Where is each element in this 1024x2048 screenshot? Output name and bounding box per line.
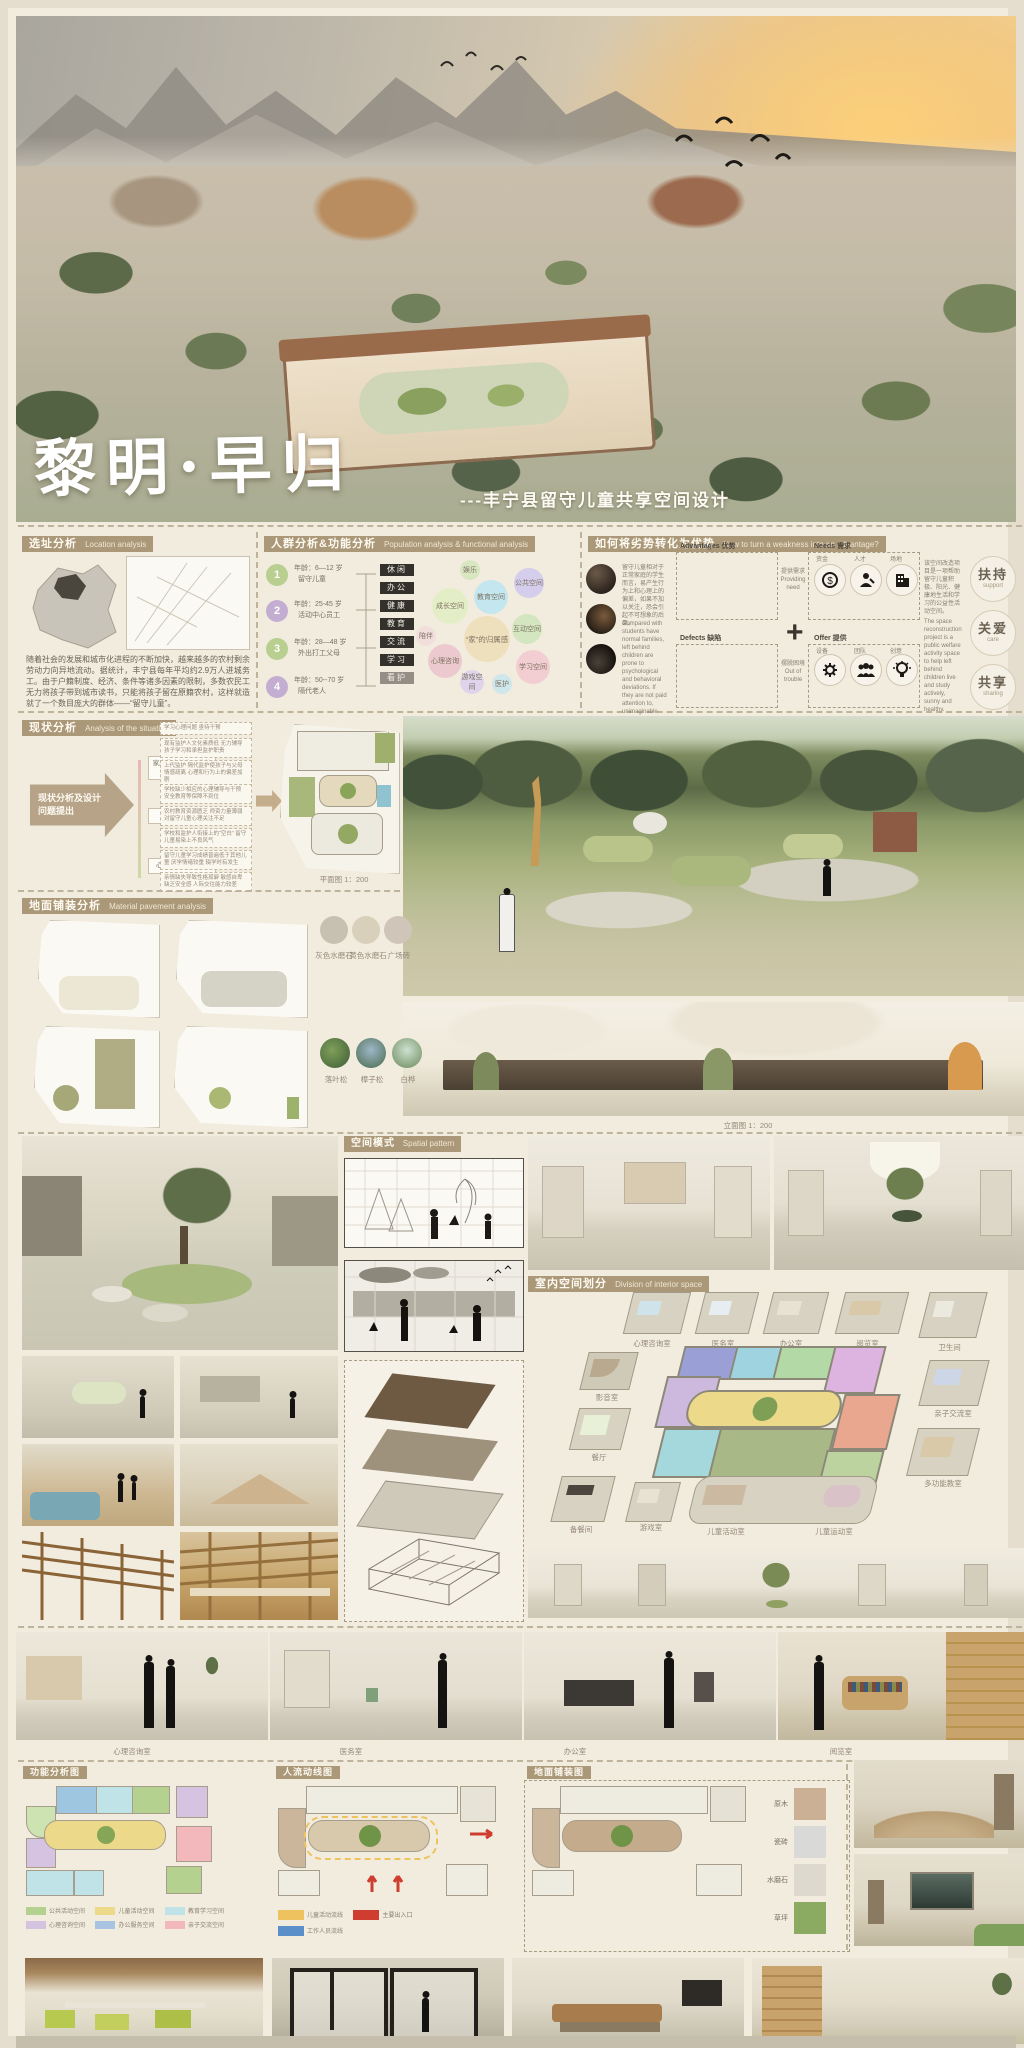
- tag-study: 学习: [380, 654, 414, 666]
- connector-lines: [356, 564, 378, 704]
- divider: [18, 525, 1022, 527]
- situation-arrow-label: 现状分析及设计问题提出: [38, 792, 102, 818]
- dining-tables: [65, 2002, 205, 2008]
- birds-icon: [436, 46, 556, 86]
- legend-family: 亲子交流空间: [165, 1923, 224, 1929]
- panorama-reading: [778, 1632, 1024, 1740]
- divider: [846, 1764, 848, 1950]
- room-axon-play-fill: [637, 1489, 660, 1503]
- interior-strip-render: [528, 1548, 1024, 1618]
- pavement-1-area: [59, 976, 139, 1010]
- room-label-toilet: 卫生间: [922, 1342, 977, 1353]
- meeting-chairs: [560, 2022, 660, 2032]
- tag-communication: 交流: [380, 636, 414, 648]
- defects-box: [676, 644, 778, 708]
- situation-arrow-box: 现状分析及设计问题提出: [30, 773, 134, 837]
- pp-room-bl: [532, 1870, 574, 1896]
- axon-roof-slab: [364, 1373, 495, 1428]
- room-label-counseling: 心理咨询室: [622, 1338, 682, 1349]
- elevation-caption: 立面图 1：200: [688, 1120, 808, 1131]
- issue-3: 上代监护 隔代监护使孩子与父母情感疏离 心理和行为上的偏差加剧: [160, 760, 252, 787]
- room-label-prep: 备餐间: [556, 1524, 606, 1535]
- keyword-care-en: care: [971, 637, 1015, 643]
- pano4-figure: [814, 1662, 824, 1730]
- plan-lawn-circle: [338, 824, 358, 844]
- advantages-box: [676, 552, 778, 620]
- room-axon-office: [763, 1292, 829, 1334]
- material-swatch-1: [320, 916, 348, 944]
- context-photo-2: [586, 604, 616, 634]
- section-spatial-title-zh: 空间模式: [351, 1138, 395, 1149]
- cp-room-bl: [278, 1870, 320, 1896]
- pano1-figure-2: [166, 1666, 175, 1728]
- arrow-top-label: 提供需求 Providing need: [780, 568, 806, 592]
- defects-box-label: Defects 缺陷: [680, 634, 721, 643]
- pp-rooms-top: [560, 1786, 708, 1814]
- group-3-age: 年龄：28—48 岁: [294, 638, 358, 647]
- county-map: [28, 560, 120, 652]
- legend-staffflow-label: 工作人员流线: [307, 1929, 343, 1935]
- room-axon-counseling: [623, 1292, 691, 1334]
- divider: [18, 890, 400, 892]
- dining-chairs-3: [155, 2010, 191, 2028]
- projection-screen: [910, 1872, 974, 1910]
- room-axon-dining: [569, 1408, 631, 1450]
- bubble-counseling: 心理咨询: [428, 644, 462, 678]
- poster-footer-strip: [16, 2036, 1016, 2048]
- person-silhouette: [823, 866, 831, 896]
- pano4-books: [848, 1682, 902, 1692]
- room-axon-toilet: [918, 1292, 987, 1338]
- doorway-1: [542, 1166, 584, 1238]
- tree-trunk: [180, 1226, 188, 1266]
- offer-item-3: 创意: [890, 648, 902, 656]
- needs-funding-icon: $: [814, 564, 846, 596]
- divider: [18, 711, 1022, 713]
- context-photo-3: [586, 644, 616, 674]
- room-axon-multi-fill: [920, 1437, 955, 1457]
- room-axon-medical: [695, 1292, 759, 1334]
- bubble-public-space: 公共空间: [514, 568, 544, 598]
- big-arrow: [256, 790, 282, 812]
- material-swatch-3: [384, 916, 412, 944]
- sculpture-white: [633, 812, 667, 834]
- fp-room-green3: [166, 1866, 202, 1894]
- fp-room-cyan3: [74, 1870, 104, 1896]
- projection-door: [868, 1880, 884, 1924]
- master-plan: [280, 724, 400, 874]
- pano3-figure-1: [664, 1658, 674, 1728]
- pavement-3-area: [95, 1039, 135, 1109]
- doorway-2: [714, 1166, 752, 1238]
- legend-childflow-swatch: [278, 1910, 304, 1920]
- legend-entrance-swatch: [353, 1910, 379, 1920]
- legend-staffflow: 工作人员流线: [278, 1929, 343, 1935]
- legend-childflow-label: 儿童活动流线: [307, 1913, 343, 1919]
- pano4-bookwall: [946, 1632, 1024, 1740]
- issue-6: 学校和监护人衔接上的“空白” 留守儿童易染上不良风气: [160, 828, 252, 848]
- plan-green-w: [289, 777, 315, 817]
- group-3-number: 3: [266, 638, 288, 660]
- advantage-right-paragraph-zh: 该空间改造项目是一项帮助留守儿童积极、阳光、健康地生活和学习的公益性活动空间。: [924, 560, 962, 616]
- thumb4-mound: [210, 1474, 310, 1504]
- legend-family-swatch: [165, 1921, 185, 1929]
- pp-room-l: [532, 1808, 560, 1868]
- section-location-title-en: Location analysis: [85, 540, 146, 549]
- keyword-care: 关爱 care: [970, 610, 1016, 656]
- room-label-av: 影音室: [582, 1392, 632, 1403]
- situation-axis: [138, 760, 141, 878]
- issue-8: 亲情缺失导致性格孤僻 敏感自卑 缺乏安全感 人际交往能力较差: [160, 872, 252, 892]
- circulation-legend-row-2: 工作人员流线: [278, 1920, 349, 1938]
- arrow-bottom-label-zh: 摆脱困境: [781, 661, 805, 667]
- issue-1: 学习心理问题 亟待干预: [160, 722, 252, 735]
- plan-plaza: [311, 813, 383, 855]
- material-label-3: 广场砖: [378, 950, 420, 961]
- amphi-door: [994, 1774, 1014, 1830]
- function-legend-row-2: 心理咨询空间 办公服务空间 亲子交流空间: [26, 1914, 266, 1932]
- issue-7: 留守儿童学习成绩普遍低于其他儿童 厌学情绪较重 辍学时有发生: [160, 850, 252, 870]
- bubble-company: 陪伴: [416, 626, 436, 646]
- pavement-plan-3: [34, 1026, 160, 1128]
- tree-swatch-2: [356, 1038, 386, 1068]
- pp-tree: [611, 1825, 633, 1847]
- thumb2-person: [290, 1398, 295, 1418]
- thumb3-person-2: [132, 1482, 136, 1500]
- group-3-role: 外出打工父母: [298, 649, 340, 658]
- plan-header-function: 功能分析图: [23, 1766, 87, 1779]
- context-photo-1: [586, 564, 616, 594]
- section-population-header: 人群分析&功能分析 Population analysis & function…: [264, 536, 535, 552]
- room-axon-children-fill-2: [821, 1485, 862, 1507]
- arrow-bottom-label-en: Out of trouble: [784, 669, 802, 683]
- pano1-kitchen-wall: [26, 1656, 82, 1700]
- strip-door-4: [964, 1564, 988, 1606]
- needs-item-1: 资金: [816, 556, 828, 564]
- legend-entrance: 主要出入口: [353, 1913, 412, 1919]
- section-pavement-title-zh: 地面铺装分析: [29, 900, 101, 912]
- elevation-tree-1: [473, 1052, 499, 1090]
- section-spatial-header: 空间模式 Spatial pattern: [344, 1136, 461, 1152]
- section-location-title-zh: 选址分析: [29, 538, 77, 550]
- interior-render-2-lightwell: [774, 1136, 1024, 1270]
- poster-subtitle: ---丰宁县留守儿童共享空间设计: [460, 486, 730, 511]
- big-tree: [142, 1146, 252, 1236]
- arrow-top-label-zh: 提供需求: [781, 569, 805, 575]
- room-axon-dining-fill: [580, 1415, 611, 1435]
- bubble-growth-space: 成长空间: [432, 588, 468, 624]
- tag-education: 教育: [380, 618, 414, 630]
- axon-wireframe: [359, 1529, 509, 1609]
- park-render: [403, 716, 1024, 996]
- keyword-support-en: support: [971, 583, 1015, 589]
- projection-room-render: [854, 1854, 1024, 1946]
- bubble-study-space: 学习空间: [516, 650, 550, 684]
- courtyard-garden: [357, 360, 571, 436]
- material-right-swatch-2: [794, 1826, 826, 1858]
- indoor-tree: [878, 1166, 932, 1210]
- amphitheater-render: [854, 1760, 1024, 1848]
- legend-childflow: 儿童活动流线: [278, 1913, 343, 1919]
- elevation-tree-autumn: [948, 1042, 982, 1090]
- panorama-counseling: [16, 1632, 270, 1740]
- room-axon-medical-fill: [709, 1301, 732, 1315]
- legend-officearea-swatch: [95, 1921, 115, 1929]
- pano2-stool: [366, 1688, 378, 1702]
- stone-seat-2: [142, 1304, 188, 1322]
- panorama-label-1: 心理咨询室: [102, 1746, 162, 1757]
- legend-officearea-label: 办公服务空间: [118, 1923, 154, 1929]
- keyword-sharing: 共享 sharing: [970, 664, 1016, 710]
- room-axon-office-fill: [777, 1301, 802, 1315]
- elevation-tree-2: [703, 1048, 733, 1090]
- fp-room-blue: [56, 1786, 98, 1814]
- group-1-age: 年龄：6—12 岁: [294, 564, 358, 573]
- bubble-education-space: 教育空间: [474, 580, 508, 614]
- doorway-3: [788, 1170, 824, 1236]
- bubble-interaction-space: 互动空间: [512, 614, 542, 644]
- pp-room-br: [696, 1864, 742, 1896]
- divider: [18, 1626, 1022, 1628]
- plan-tree: [340, 783, 356, 799]
- room-label-family: 亲子交流室: [920, 1408, 986, 1419]
- offer-item-1: 设备: [816, 648, 828, 656]
- fp-room-pink: [176, 1826, 212, 1862]
- section-pavement-header: 地面铺装分析 Material pavement analysis: [22, 898, 213, 914]
- thumb2-wall: [200, 1376, 260, 1402]
- function-plan: [26, 1786, 256, 1894]
- tag-health: 健康: [380, 600, 414, 612]
- plan-pool: [377, 785, 391, 807]
- plan-header-circulation: 人流动线图: [276, 1766, 340, 1779]
- room-axon-multi: [906, 1428, 980, 1476]
- cp-side-arrow: [468, 1826, 498, 1842]
- strip-tree-bed: [766, 1600, 788, 1608]
- offer-item-2: 团队: [854, 648, 866, 656]
- cp-room-l: [278, 1808, 306, 1868]
- section-situation-title-zh: 现状分析: [29, 722, 77, 734]
- bubble-game-space: 游戏空间: [460, 670, 484, 694]
- room-label-multi: 多功能教室: [910, 1478, 976, 1489]
- legend-counsel-swatch: [26, 1921, 46, 1929]
- location-paragraph: 随着社会的发展和城市化进程的不断加快，越来越多的农村剩余劳动力向异地流动。据统计…: [26, 654, 250, 709]
- indoor-tree-bed: [892, 1210, 922, 1222]
- pavement-plan-2: [176, 920, 308, 1018]
- meeting-render: [512, 1958, 744, 2044]
- building-volume: [272, 1196, 338, 1266]
- room-axon-family: [918, 1360, 989, 1406]
- thumb3-person: [118, 1480, 123, 1502]
- plan-green-ne: [375, 733, 395, 763]
- group-1-number: 1: [266, 564, 288, 586]
- pano1-figure-1: [144, 1662, 154, 1728]
- glass-partition-2: [390, 1968, 478, 2042]
- cp-flow-loop: [304, 1816, 438, 1860]
- person-photographer: [499, 894, 515, 952]
- thumb1-person: [140, 1396, 145, 1418]
- section-population-title-en: Population analysis & functional analysi…: [384, 540, 528, 549]
- offer-equipment-icon: [814, 654, 846, 686]
- room-label-activity: 儿童活动室: [696, 1526, 756, 1537]
- thumb-render-4: [180, 1444, 338, 1526]
- cp-room-br: [446, 1864, 488, 1896]
- lawn-mound-3: [783, 834, 843, 858]
- reading-plant: [988, 1968, 1016, 2008]
- group-4-role: 隔代老人: [298, 687, 326, 696]
- exploded-floorplan: [637, 1346, 914, 1496]
- strip-door-3: [858, 1564, 886, 1606]
- plan-courtyard: [319, 775, 377, 807]
- meeting-screen: [682, 1980, 722, 2006]
- section-interior-title-zh: 室内空间划分: [535, 1278, 607, 1290]
- legend-counsel: 心理咨询空间: [26, 1923, 85, 1929]
- courtyard-render: [22, 1136, 338, 1350]
- dining-render: [25, 1958, 263, 2044]
- strip-door-1: [554, 1564, 582, 1606]
- room-label-sport: 儿童运动室: [804, 1526, 864, 1537]
- pano2-figure: [438, 1660, 447, 1728]
- zone-tree-circle: [750, 1397, 780, 1421]
- offer-box-label: Offer 提供: [814, 634, 847, 643]
- advantages-box-label: Advantages 优势: [680, 542, 736, 551]
- pp-room-tr: [710, 1786, 746, 1822]
- divider: [580, 532, 582, 708]
- strip-tree: [754, 1556, 798, 1604]
- amphi-steps: [874, 1804, 994, 1838]
- group-2-age: 年龄：25-45 岁: [294, 600, 358, 609]
- divider: [18, 1132, 1022, 1134]
- section-spatial-title-en: Spatial pattern: [403, 1139, 455, 1148]
- keyword-support-zh: 扶持: [971, 564, 1015, 583]
- dining-chairs-1: [45, 2010, 75, 2028]
- pano2-cabinet: [284, 1650, 330, 1708]
- pano4-bookshelf: [842, 1676, 908, 1710]
- section-advantage-title-en: How to turn a weakness into an advantage…: [723, 540, 879, 549]
- offer-idea-icon: [886, 654, 918, 686]
- group-1-role: 留守儿童: [298, 575, 326, 584]
- room-label-play: 游戏室: [628, 1522, 674, 1533]
- zone-yellow-corridor: [682, 1390, 845, 1428]
- site-sketch: [126, 556, 250, 650]
- material-swatch-2: [352, 916, 380, 944]
- reading-room-render: [752, 1958, 1024, 2044]
- issue-5: 农村教育资源匮乏 师资力量薄弱 对留守儿童心理关注不足: [160, 806, 252, 826]
- needs-item-3: 场地: [890, 556, 902, 564]
- pavement-4-circle: [209, 1087, 231, 1109]
- group-2-role: 活动中心员工: [298, 611, 340, 620]
- partition-render: [272, 1958, 504, 2044]
- tree-swatch-1: [320, 1038, 350, 1068]
- thumb-render-5: [22, 1532, 174, 1620]
- fp-room-green: [132, 1786, 170, 1814]
- axon-mid-slab: [362, 1429, 498, 1481]
- partition-figure: [422, 1998, 429, 2032]
- section-interior-header: 室内空间划分 Division of interior space: [528, 1276, 709, 1292]
- keyword-care-zh: 关爱: [971, 618, 1015, 637]
- section-pavement-title-en: Material pavement analysis: [109, 902, 206, 911]
- fp-room-purple: [176, 1786, 208, 1818]
- circulation-plan: [278, 1786, 504, 1894]
- room-axon-av-fill: [590, 1359, 620, 1377]
- exploded-axon-panel: [344, 1360, 524, 1622]
- keyword-support: 扶持 support: [970, 556, 1016, 602]
- moss-floor: [974, 1924, 1024, 1946]
- cp-room-tr: [460, 1786, 496, 1822]
- spatial-sketch-1: [344, 1158, 524, 1248]
- panorama-medical: [270, 1632, 524, 1740]
- needs-talent-icon: [850, 564, 882, 596]
- material-right-swatch-4: [794, 1902, 826, 1934]
- reading-table: [862, 2006, 972, 2022]
- section-interior-title-en: Division of interior space: [615, 1280, 702, 1289]
- room-axon-children-fill-1: [702, 1485, 747, 1505]
- section-situation-title-en: Analysis of the situation: [85, 724, 169, 733]
- birds-flock-icon: [666, 111, 806, 191]
- thumb-render-2: [180, 1356, 338, 1438]
- poster-title: 黎明·早归: [33, 413, 354, 509]
- lawn-mound-2: [671, 856, 751, 886]
- thumb1-lawn: [72, 1382, 126, 1404]
- pano3-desks: [564, 1680, 634, 1706]
- material-right-swatch-3: [794, 1864, 826, 1896]
- svg-text:$: $: [827, 576, 833, 587]
- thumb-render-6: [180, 1532, 338, 1620]
- pavement-4-green: [287, 1097, 299, 1119]
- glass-partition-1: [290, 1968, 388, 2042]
- offer-team-icon: [850, 654, 882, 686]
- strip-door-2: [638, 1564, 666, 1606]
- room-axon-reading-fill: [849, 1301, 882, 1315]
- thumb-render-3: [22, 1444, 174, 1526]
- meeting-table: [552, 2004, 662, 2022]
- fp-room-cyan2: [26, 1870, 74, 1896]
- tree-swatch-3: [392, 1038, 422, 1068]
- room-axon-prep-fill: [566, 1485, 594, 1495]
- doorway-4: [980, 1170, 1012, 1236]
- group-4-age: 年龄：50--70 岁: [294, 676, 358, 685]
- fp-corridor: [44, 1820, 166, 1850]
- bottom-pavement-plan: [532, 1786, 752, 1894]
- elevation-render: [403, 1002, 1024, 1116]
- group-2-number: 2: [266, 600, 288, 622]
- cp-rooms-top: [306, 1786, 458, 1814]
- panorama-label-3: 办公室: [550, 1746, 600, 1757]
- material-right-swatch-1: [794, 1788, 826, 1820]
- partition-mullion: [330, 1972, 334, 2030]
- wall-niche: [624, 1162, 686, 1204]
- bubble-medical: 医护: [492, 674, 512, 694]
- tree-label-2: 樟子松: [352, 1074, 392, 1085]
- material-right-label-1: 原木: [760, 1800, 788, 1809]
- keyword-sharing-en: sharing: [971, 691, 1015, 697]
- room-axon-av: [579, 1352, 638, 1390]
- lawn-circle: [122, 1264, 252, 1304]
- pp-corridor: [562, 1820, 682, 1852]
- arrow-bottom-label: 摆脱困境 Out of trouble: [780, 660, 806, 684]
- needs-box-label: Needs 需求: [814, 542, 851, 551]
- section-situation-header: 现状分析 Analysis of the situation: [22, 720, 176, 736]
- group-4-number: 4: [266, 676, 288, 698]
- material-right-label-4: 草坪: [760, 1914, 788, 1923]
- bubble-entertainment: 娱乐: [460, 560, 480, 580]
- tree-label-1: 落叶松: [316, 1074, 356, 1085]
- material-right-label-3: 水磨石: [756, 1876, 788, 1885]
- room-axon-children: [686, 1476, 880, 1524]
- dining-chairs-2: [95, 2014, 129, 2030]
- interior-render-1: [528, 1136, 770, 1270]
- tree-label-3: 白桦: [390, 1074, 426, 1085]
- room-axon-play: [625, 1482, 681, 1522]
